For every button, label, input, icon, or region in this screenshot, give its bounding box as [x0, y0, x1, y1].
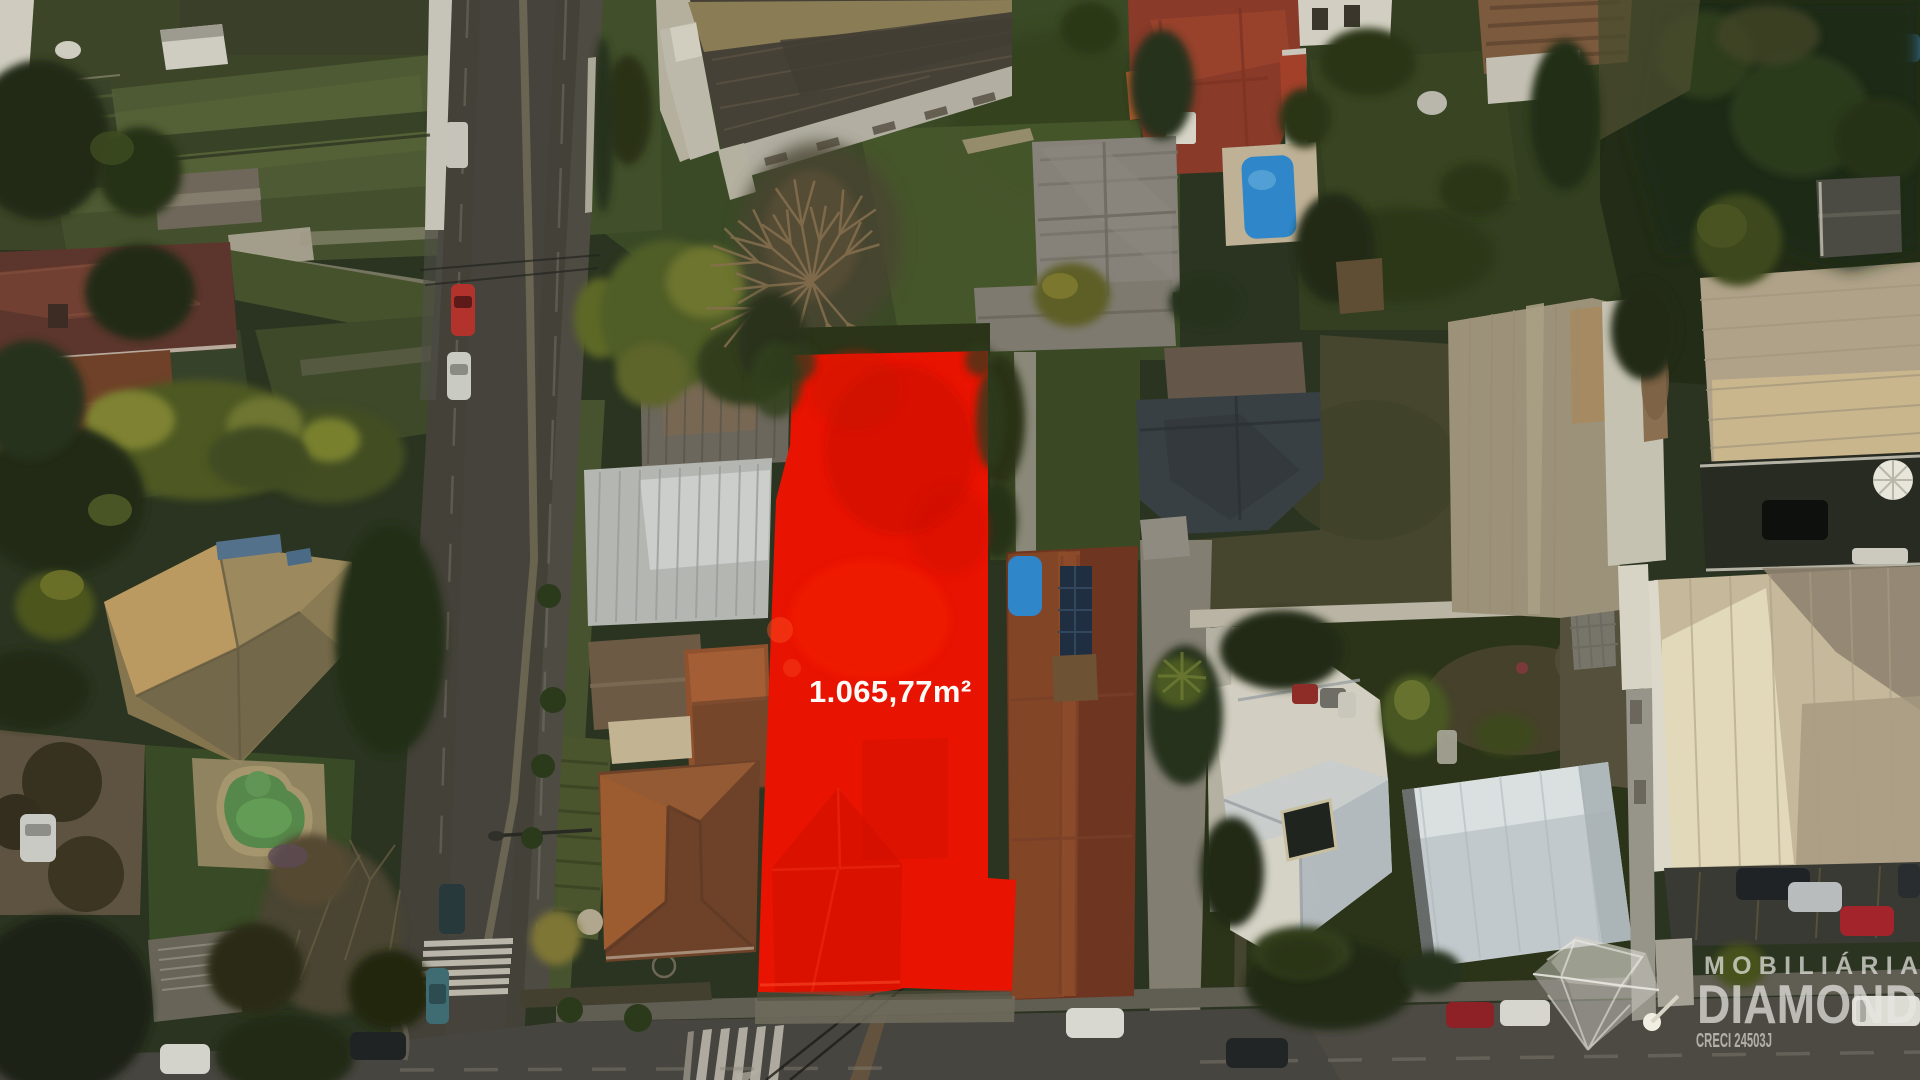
svg-text:CRECI 24503J: CRECI 24503J	[1696, 1030, 1772, 1052]
svg-text:1.065,77m²: 1.065,77m²	[809, 674, 972, 709]
svg-text:DIAMOND: DIAMOND	[1697, 973, 1918, 1035]
